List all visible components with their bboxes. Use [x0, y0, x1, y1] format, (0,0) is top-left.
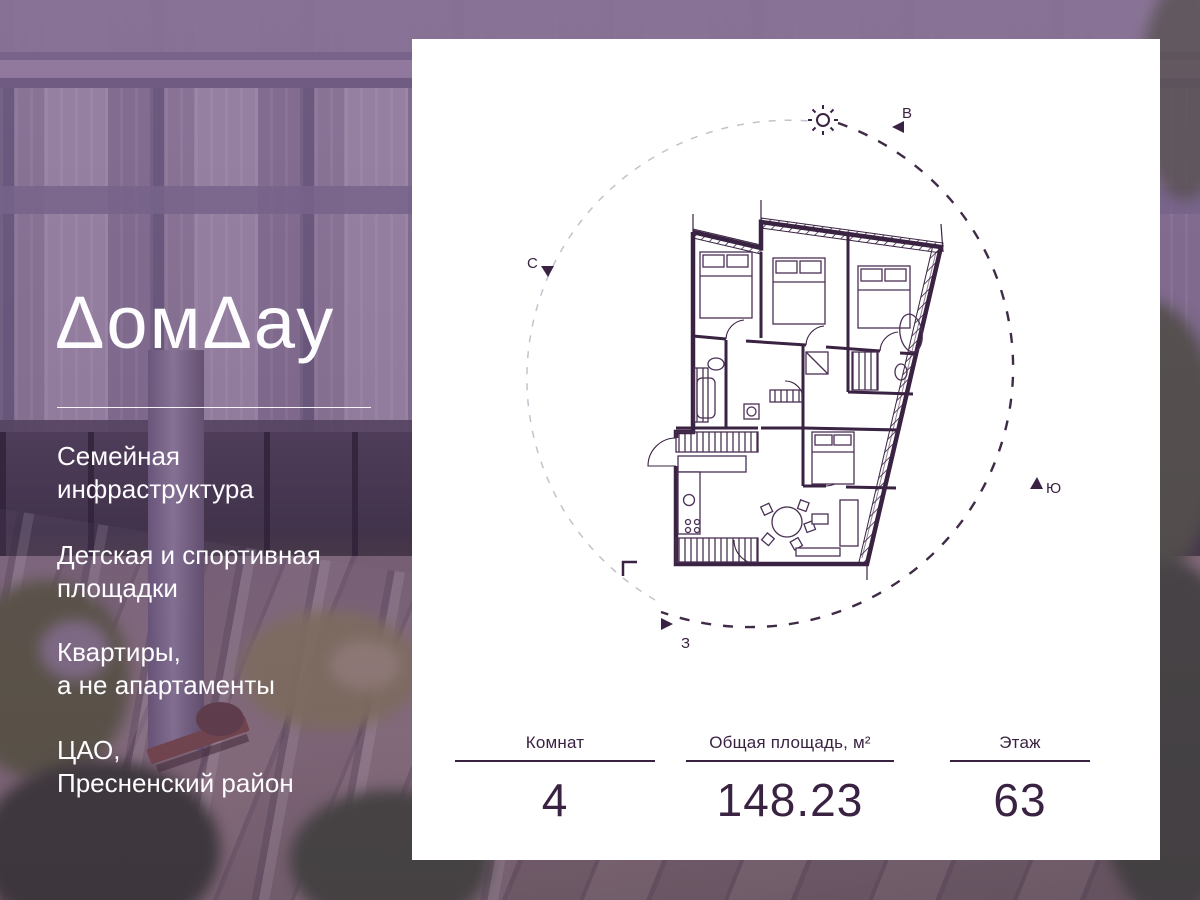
wardrobe — [770, 390, 802, 402]
floor-plan: В С Ю З — [412, 39, 1160, 719]
stat-rooms: Комнат 4 — [455, 733, 655, 827]
coffee-table — [812, 514, 828, 524]
stat-label: Этаж — [950, 733, 1090, 753]
stat-value: 63 — [950, 773, 1090, 827]
stat-label: Общая площадь, м² — [686, 733, 894, 753]
compass-arrow-east — [892, 121, 904, 133]
stats-row: Комнат 4 Общая площадь, м² 148.23 Этаж 6… — [412, 733, 1160, 853]
compass-label-east: В — [902, 105, 912, 122]
listing-card: В С Ю З — [412, 39, 1160, 860]
corner-mark — [623, 562, 637, 576]
wardrobe — [676, 432, 758, 452]
stat-underline — [950, 760, 1090, 762]
sun-icon — [808, 105, 838, 135]
stat-underline — [455, 760, 655, 762]
compass-arrow-south — [1030, 477, 1043, 489]
compass-label-south: Ю — [1046, 480, 1061, 497]
stat-floor: Этаж 63 — [950, 733, 1090, 827]
feature-list: Семейная инфраструктура Детская и спорти… — [57, 440, 321, 833]
feature-item: ЦАО, Пресненский район — [57, 734, 321, 800]
stat-value: 148.23 — [686, 773, 894, 827]
bed — [773, 258, 825, 324]
compass-label-west: З — [681, 635, 690, 652]
bed — [700, 252, 752, 318]
sofa — [840, 500, 858, 546]
wardrobe — [694, 368, 708, 422]
bed — [812, 432, 854, 484]
tv-stand — [796, 548, 840, 556]
wardrobe — [676, 538, 758, 562]
compass-arrow-north — [541, 266, 554, 277]
compass-label-north: С — [527, 255, 538, 272]
stat-total-area: Общая площадь, м² 148.23 — [686, 733, 894, 827]
compass-arrow-west — [661, 618, 673, 630]
brand-logo: ΔомΔау — [55, 280, 335, 365]
feature-item: Детская и спортивная площадки — [57, 539, 321, 605]
wardrobe — [852, 352, 878, 390]
left-text-panel: ΔомΔау Семейная инфраструктура Детская и… — [0, 0, 412, 900]
stat-value: 4 — [455, 773, 655, 827]
stat-label: Комнат — [455, 733, 655, 753]
logo-divider — [57, 407, 371, 408]
feature-item: Квартиры, а не апартаменты — [57, 636, 321, 702]
feature-item: Семейная инфраструктура — [57, 440, 321, 506]
stat-underline — [686, 760, 894, 762]
